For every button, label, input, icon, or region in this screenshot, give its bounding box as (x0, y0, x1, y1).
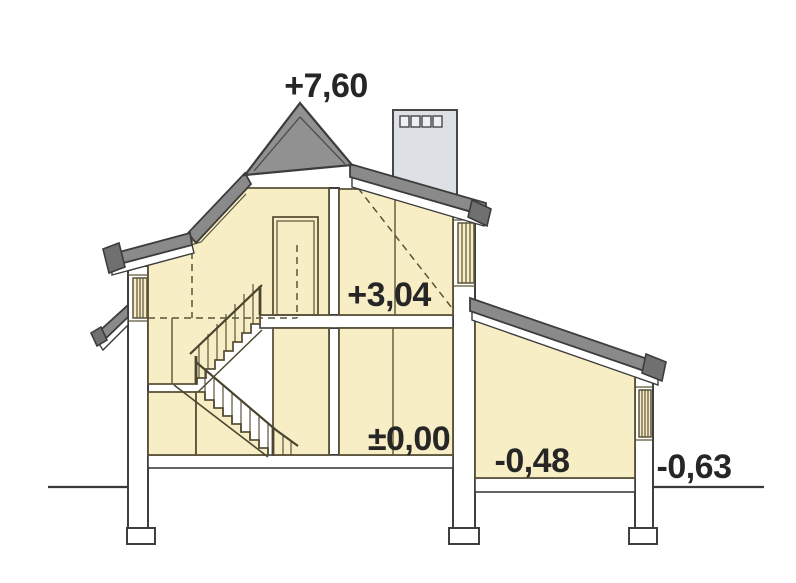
ground-stair-room-right (273, 328, 329, 455)
house-section-canvas: +7,60 +3,04 ±0,00 -0,48 -0,63 (0, 0, 796, 583)
chimney-flue (411, 116, 420, 127)
middle-footing (449, 528, 479, 544)
annex-floor-slab (475, 478, 635, 492)
chimney-flue (422, 116, 431, 127)
label-annex-floor-level: -0,48 (495, 442, 570, 480)
label-ridge-height: +7,60 (284, 67, 368, 105)
ground-interior-wall (329, 328, 339, 455)
under-landing-fill (148, 392, 196, 455)
chimney-flue (433, 116, 442, 127)
label-ground-floor-level: ±0,00 (368, 420, 450, 458)
label-terrain-level: -0,63 (657, 448, 732, 486)
upper-floor-slab (260, 315, 453, 328)
right-footing (629, 528, 657, 544)
label-upper-floor-level: +3,04 (347, 276, 431, 314)
upper-interior-wall (329, 188, 339, 315)
left-footing (127, 528, 155, 544)
left-eave-fascia (103, 243, 125, 273)
roof-gable-triangle (245, 103, 352, 175)
chimney-flue (400, 116, 409, 127)
house-cross-section-svg: +7,60 +3,04 ±0,00 -0,48 -0,63 (0, 0, 796, 583)
